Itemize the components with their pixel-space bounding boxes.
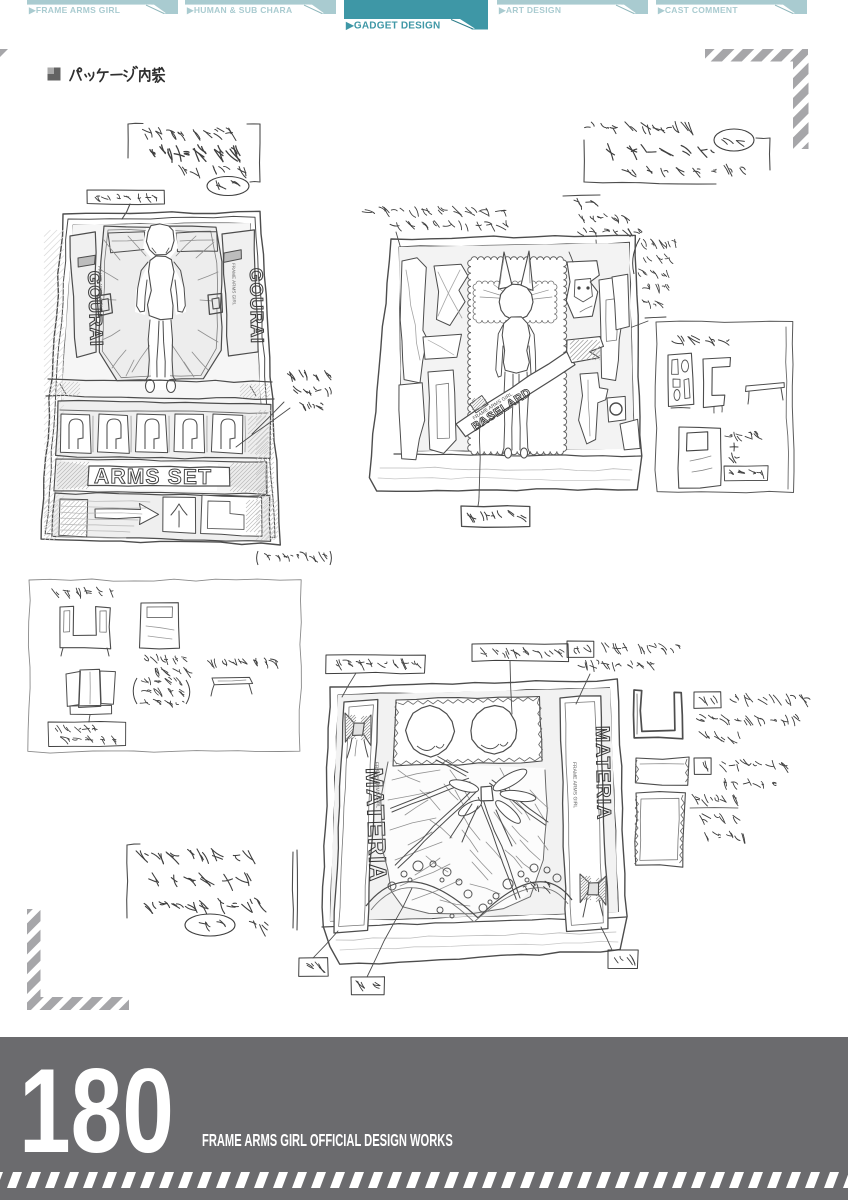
- svg-text:▶GADGET DESIGN: ▶GADGET DESIGN: [345, 21, 440, 32]
- svg-text:FRAME ARMS GIRL: FRAME ARMS GIRL: [571, 762, 578, 808]
- svg-text:ARMS SET: ARMS SET: [94, 465, 212, 489]
- svg-text:▶FRAME ARMS GIRL: ▶FRAME ARMS GIRL: [28, 5, 120, 15]
- svg-text:FRAME ARMS GIRL: FRAME ARMS GIRL: [231, 263, 237, 306]
- svg-text:180: 180: [19, 1044, 174, 1178]
- svg-text:GOURAI: GOURAI: [246, 268, 267, 344]
- svg-text:▶CAST COMMENT: ▶CAST COMMENT: [657, 5, 738, 15]
- svg-text:▶ART DESIGN: ▶ART DESIGN: [498, 5, 561, 15]
- svg-text:FRAME ARMS GIRL OFFICIAL DESIG: FRAME ARMS GIRL OFFICIAL DESIGN WORKS: [202, 1130, 453, 1150]
- svg-text:▶HUMAN & SUB CHARA: ▶HUMAN & SUB CHARA: [186, 5, 292, 15]
- svg-text:MATERIA: MATERIA: [591, 726, 615, 821]
